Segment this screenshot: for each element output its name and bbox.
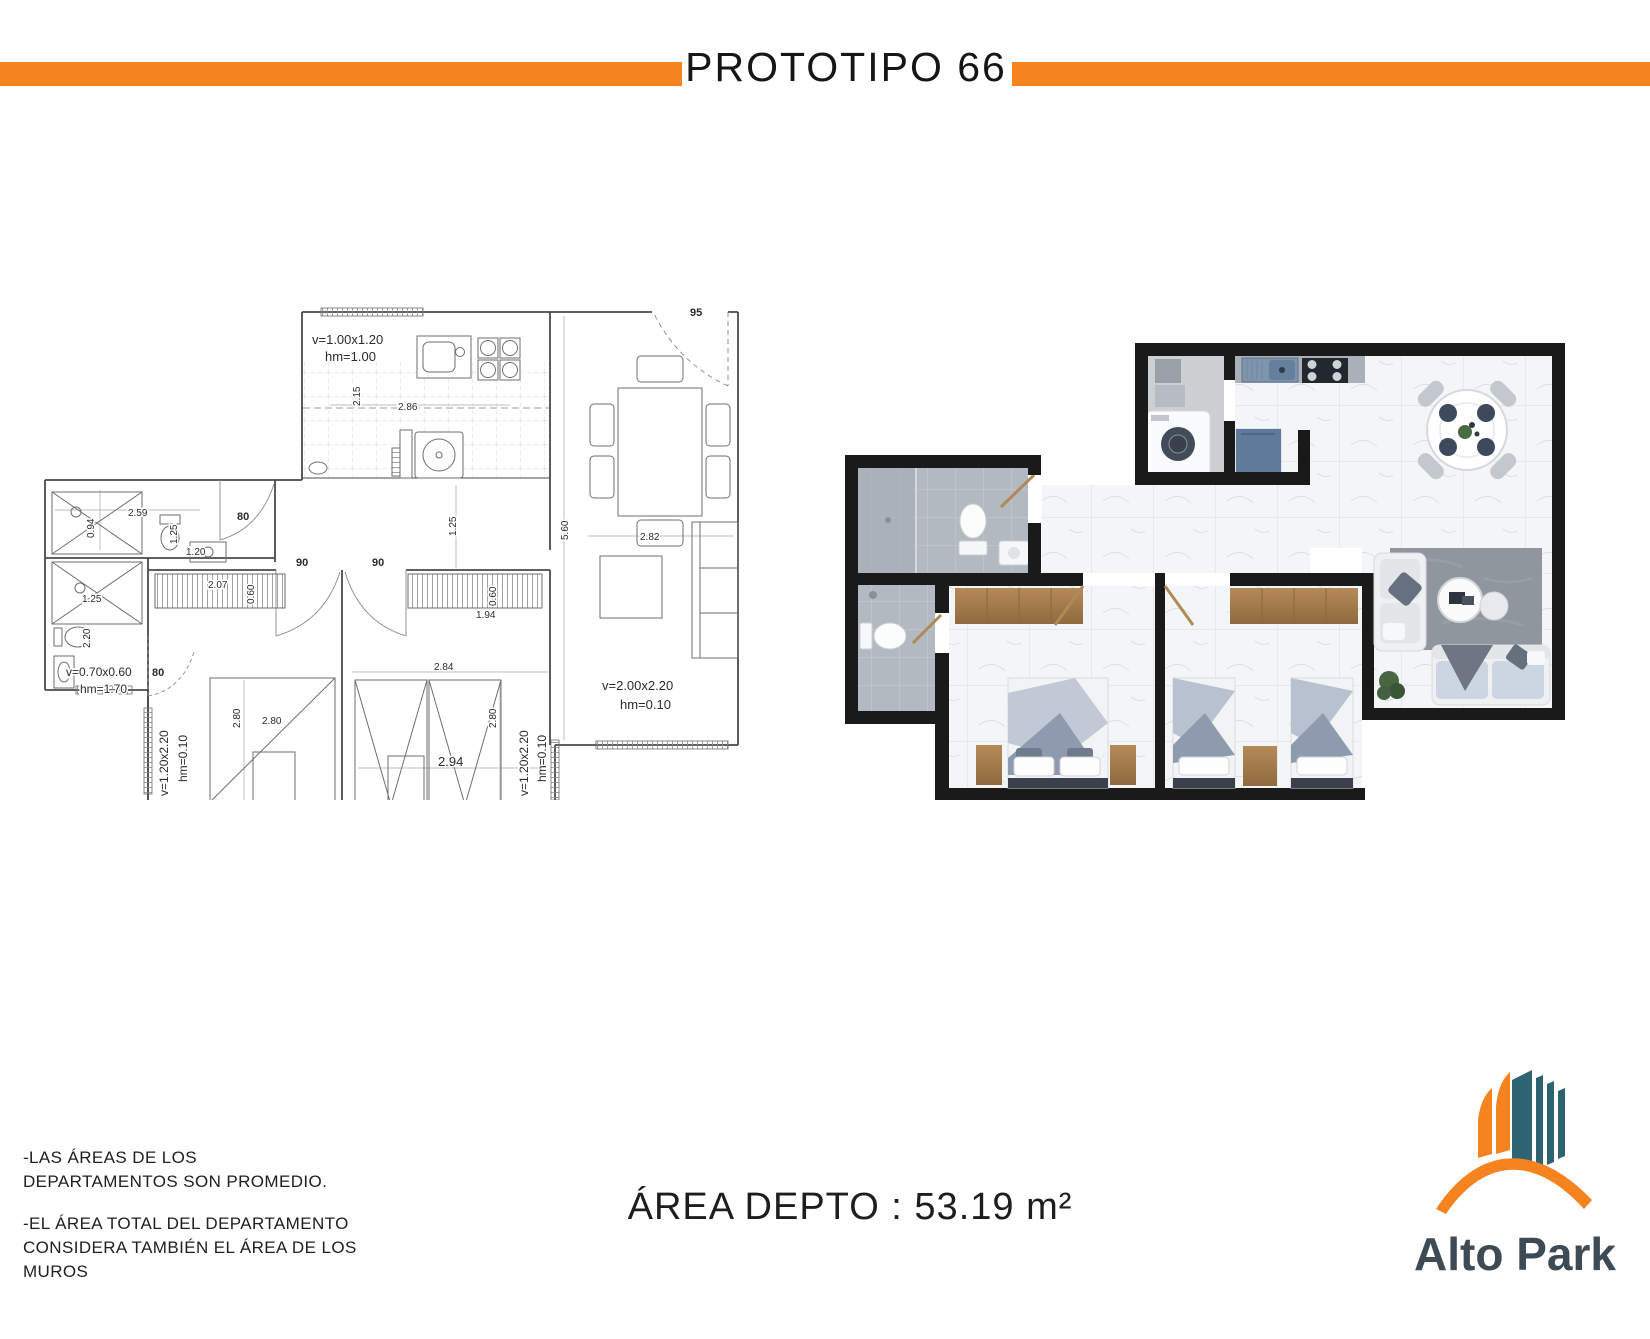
- orange-spires: [1478, 1072, 1510, 1158]
- bedroom-furniture: [155, 574, 542, 800]
- note-line: CONSIDERA TAMBIÉN EL ÁREA DE LOS: [23, 1236, 383, 1260]
- dim-label: hm=0.10: [620, 697, 671, 712]
- dim-label: 0.60: [246, 584, 257, 604]
- living-furniture: [600, 522, 738, 658]
- page-title: PROTOTIPO 66: [660, 44, 1032, 91]
- header-accent-bar-left: [0, 62, 682, 86]
- floor-plan-blueprint: v=1.00x1.20hm=1.002.152.86955.602.822.59…: [40, 300, 740, 800]
- dim-label: 1.25: [448, 516, 459, 536]
- dim-label: 2.86: [398, 402, 418, 413]
- dim-label: 1.25: [169, 524, 180, 544]
- dim-label: v=1.20x2.20: [517, 730, 531, 796]
- dim-label: 95: [690, 307, 702, 319]
- dim-label: 1.20: [186, 547, 206, 558]
- dim-label: 0.94: [86, 518, 97, 538]
- dim-label: hm=0.10: [176, 735, 190, 782]
- header-accent-bar-right: [1012, 62, 1650, 86]
- dim-label: 2.15: [352, 386, 363, 406]
- dim-label: v=1.20x2.20: [157, 730, 171, 796]
- note-line: MUROS: [23, 1260, 383, 1284]
- dim-label: 2.07: [208, 580, 228, 591]
- dim-label: 2.80: [262, 716, 282, 727]
- dim-label: v=1.00x1.20: [312, 332, 383, 347]
- dim-label: 0.60: [488, 586, 499, 606]
- dining-area: [1415, 378, 1519, 482]
- brochure-page: { "header": { "title": "PROTOTIPO 66" },…: [0, 0, 1650, 1339]
- dim-label: v=0.70x0.60: [66, 665, 132, 679]
- dining-set: [590, 356, 730, 546]
- disclaimer-notes: -LAS ÁREAS DE LOS DEPARTAMENTOS SON PROM…: [23, 1146, 383, 1284]
- dim-label: 90: [296, 557, 308, 569]
- building-skyline-icon: [1430, 1058, 1600, 1218]
- dim-label: 80: [237, 511, 249, 523]
- dim-label: 1.94: [476, 610, 496, 621]
- dim-label: hm=1.00: [325, 349, 376, 364]
- dim-label: 2.59: [128, 508, 148, 519]
- dim-label: 5.60: [560, 520, 571, 540]
- kitchen-island: [1236, 429, 1281, 472]
- floor-plan-3d-render: [843, 293, 1573, 803]
- dim-label: 2.20: [82, 628, 93, 648]
- note-line: -EL ÁREA TOTAL DEL DEPARTAMENTO: [23, 1212, 383, 1236]
- logo-wordmark: Alto Park: [1385, 1227, 1645, 1281]
- apartment-area-label: ÁREA DEPTO : 53.19 m²: [590, 1186, 1110, 1229]
- dim-label: 2.84: [434, 662, 454, 673]
- dim-label: 1.25: [82, 594, 102, 605]
- dim-label: 90: [372, 557, 384, 569]
- dim-label: hm=0.10: [535, 735, 549, 782]
- dim-label: 2.80: [488, 708, 499, 728]
- note-line: DEPARTAMENTOS SON PROMEDIO.: [23, 1170, 383, 1194]
- dim-label: 2.80: [232, 708, 243, 728]
- dim-label: 80: [152, 667, 164, 679]
- dim-label: 2.94: [438, 754, 463, 769]
- dim-label: v=2.00x2.20: [602, 678, 673, 693]
- dim-label: hm=1.70: [80, 682, 127, 696]
- note-line: -LAS ÁREAS DE LOS: [23, 1146, 383, 1170]
- dim-label: 2.82: [640, 532, 660, 543]
- alto-park-logo: Alto Park: [1385, 1058, 1645, 1281]
